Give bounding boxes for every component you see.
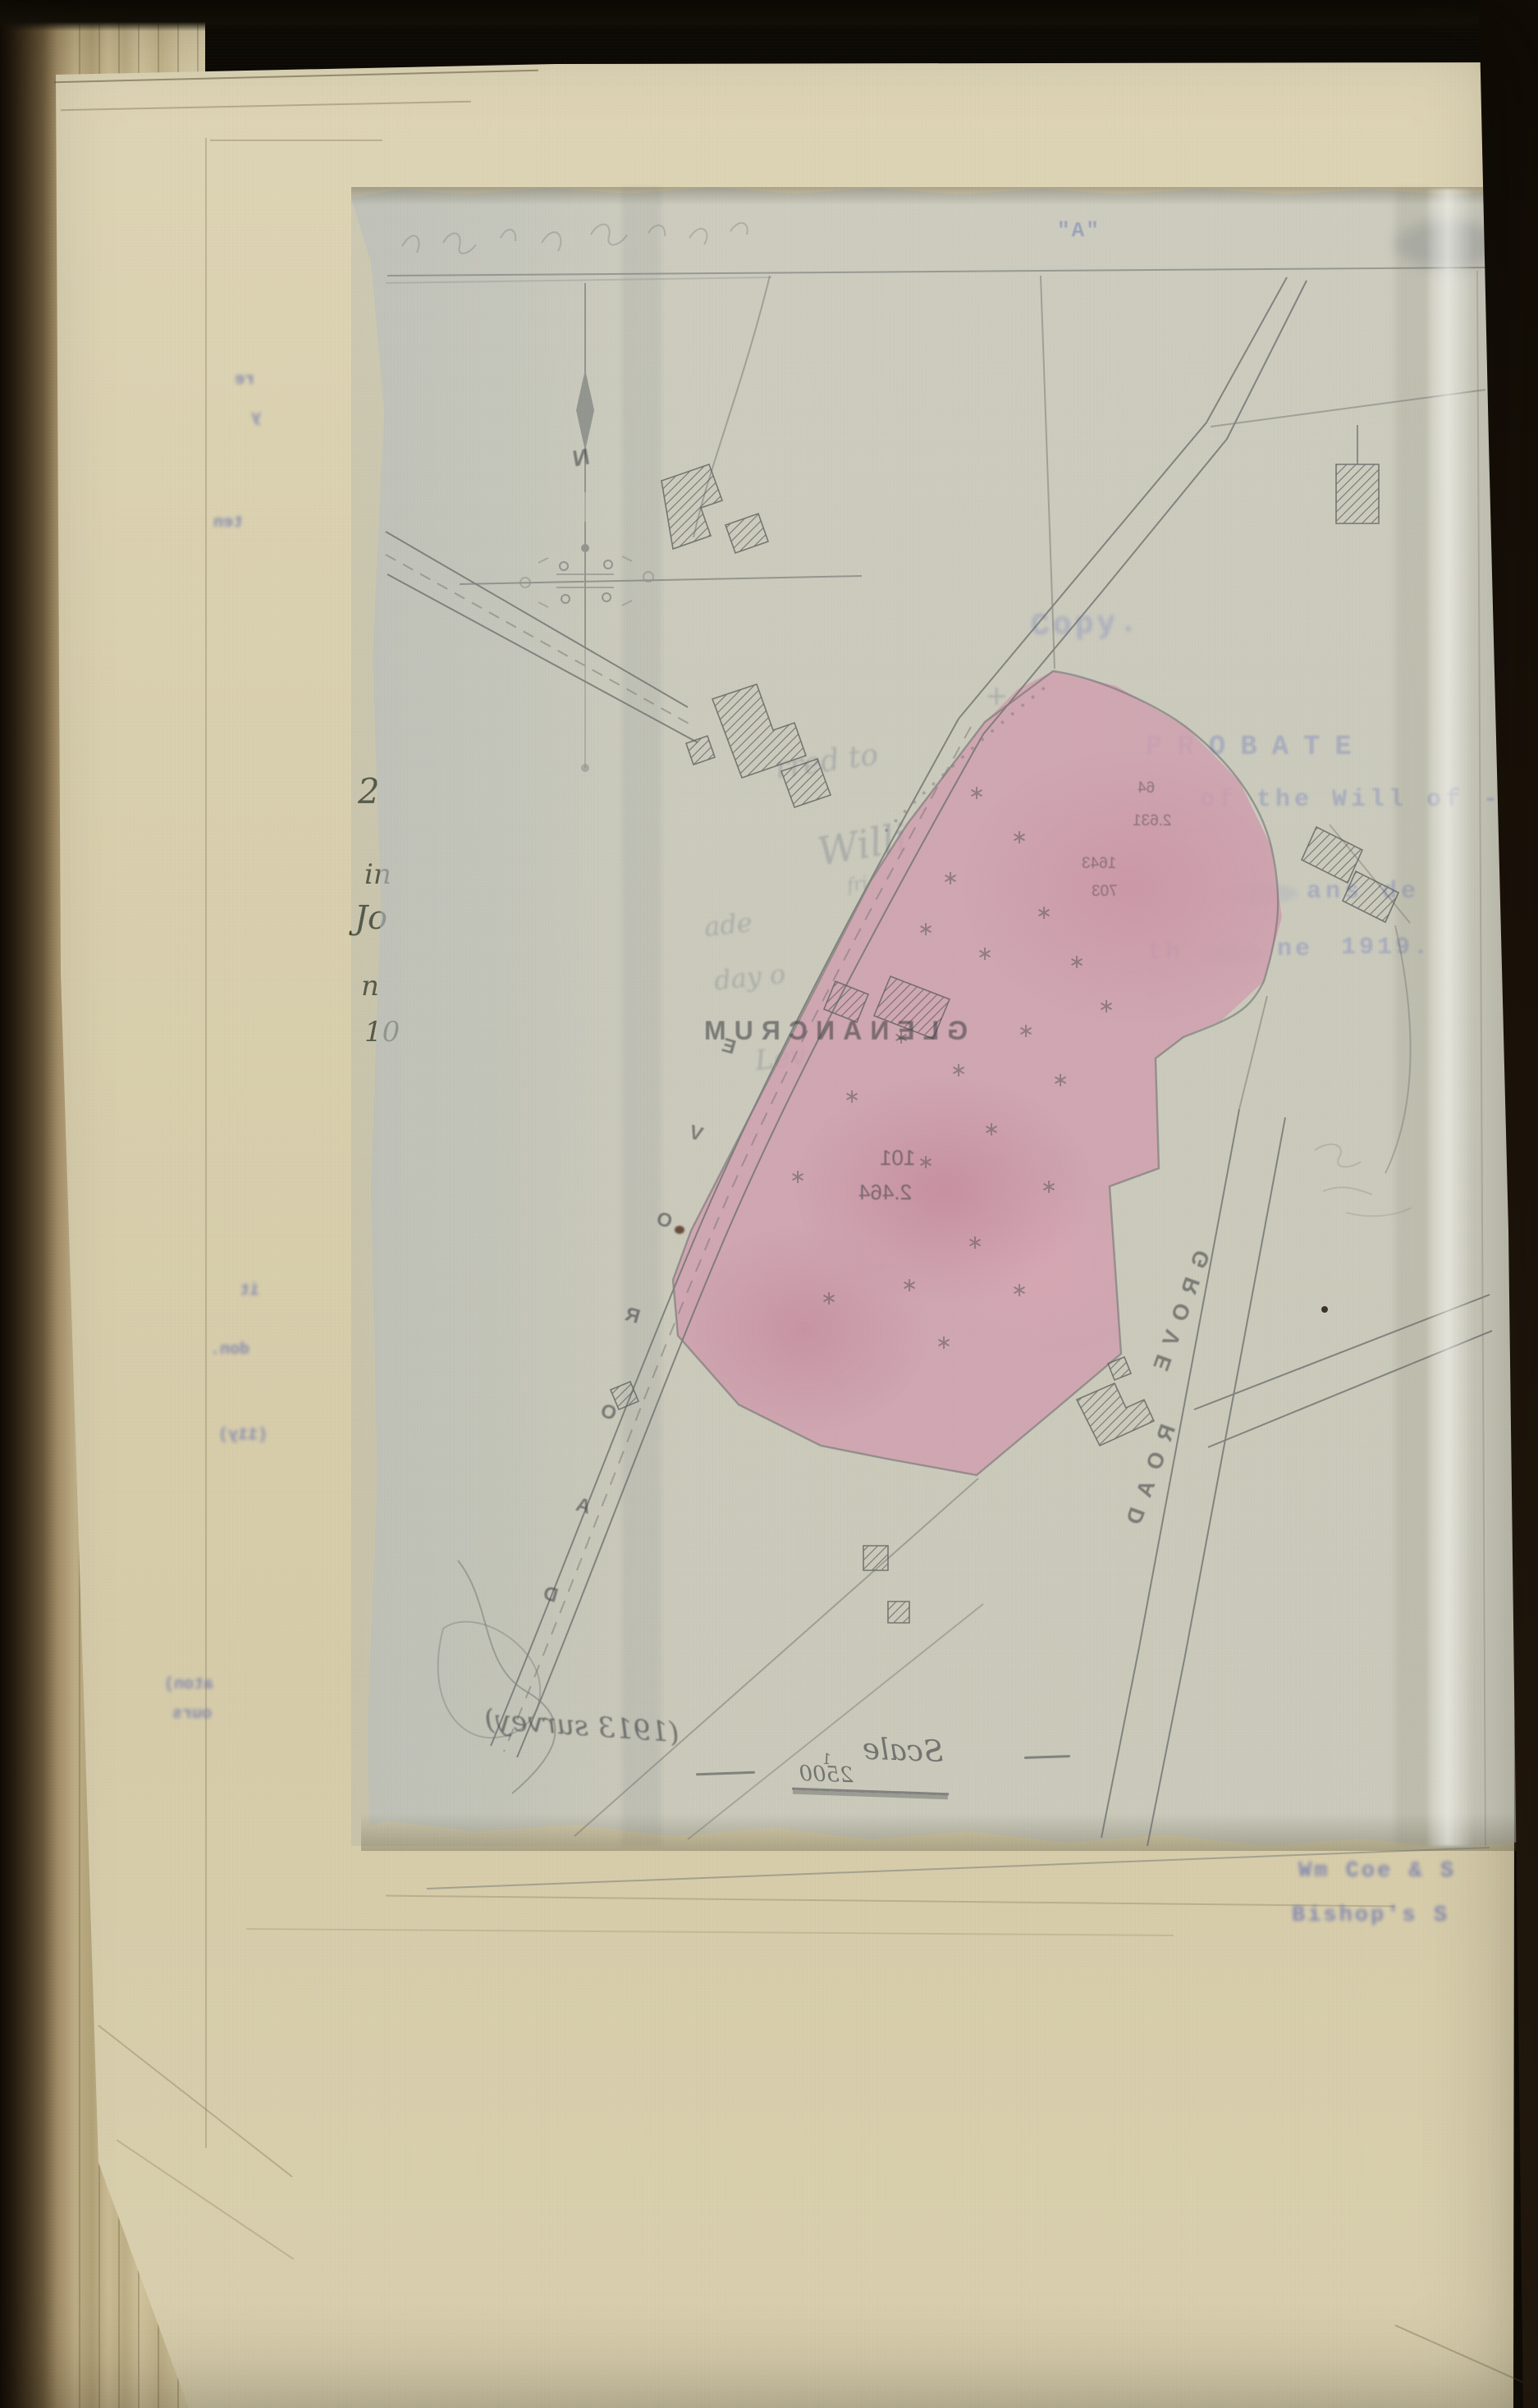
tree-symbol: ∗ xyxy=(918,917,934,941)
tree-symbol: ∗ xyxy=(942,866,959,890)
tree-symbol: ∗ xyxy=(1069,950,1085,974)
parcel-small-number: 1643 xyxy=(1082,855,1116,873)
scanned-probate-book-photo: re y ten it don. (11y) aton) ours 2 in J… xyxy=(0,0,1538,2408)
map-linework xyxy=(0,0,1538,2408)
scale-fraction: 12500 xyxy=(799,1752,854,1785)
faded-stamp-smudge xyxy=(1395,220,1502,269)
tree-symbol: ∗ xyxy=(1041,1175,1057,1199)
tree-symbol: ∗ xyxy=(1011,1278,1028,1302)
parcel-number: 101 xyxy=(880,1145,915,1171)
tree-symbol: ∗ xyxy=(1011,825,1028,849)
tree-symbol: ∗ xyxy=(1018,1019,1034,1043)
parcel-area: 2.464 xyxy=(858,1180,912,1205)
tree-symbol: ∗ xyxy=(967,1231,983,1254)
parcel-small-number: 64 xyxy=(1137,779,1155,797)
pin-hole xyxy=(1321,1306,1328,1313)
tree-symbol: ∗ xyxy=(983,1117,1000,1141)
tree-symbol: ∗ xyxy=(1052,1068,1069,1092)
scale-label: Scale xyxy=(862,1733,944,1769)
tree-symbol: ∗ xyxy=(821,1286,837,1310)
parcel-small-number: 703 xyxy=(1092,883,1118,901)
scale-fraction-denominator: 2500 xyxy=(799,1765,854,1784)
tree-symbol: ∗ xyxy=(844,1085,860,1108)
parcel-small-number: 2.631 xyxy=(1133,812,1172,830)
tree-symbol: ∗ xyxy=(968,781,985,805)
tree-symbol: ∗ xyxy=(901,1273,918,1297)
tree-symbol: ∗ xyxy=(1098,994,1115,1018)
tree-symbol: ∗ xyxy=(918,1150,934,1174)
tree-symbol: ∗ xyxy=(977,942,993,966)
ink-blot xyxy=(675,1226,684,1234)
tree-symbol: ∗ xyxy=(790,1165,806,1189)
tree-symbol: ∗ xyxy=(936,1331,952,1355)
tree-symbol: ∗ xyxy=(1036,901,1052,925)
tree-symbol: ∗ xyxy=(893,1026,909,1049)
backdrop-top xyxy=(0,0,1538,31)
tree-symbol: ∗ xyxy=(950,1058,967,1082)
scale-label-group: Scale12500 xyxy=(792,1730,951,1796)
